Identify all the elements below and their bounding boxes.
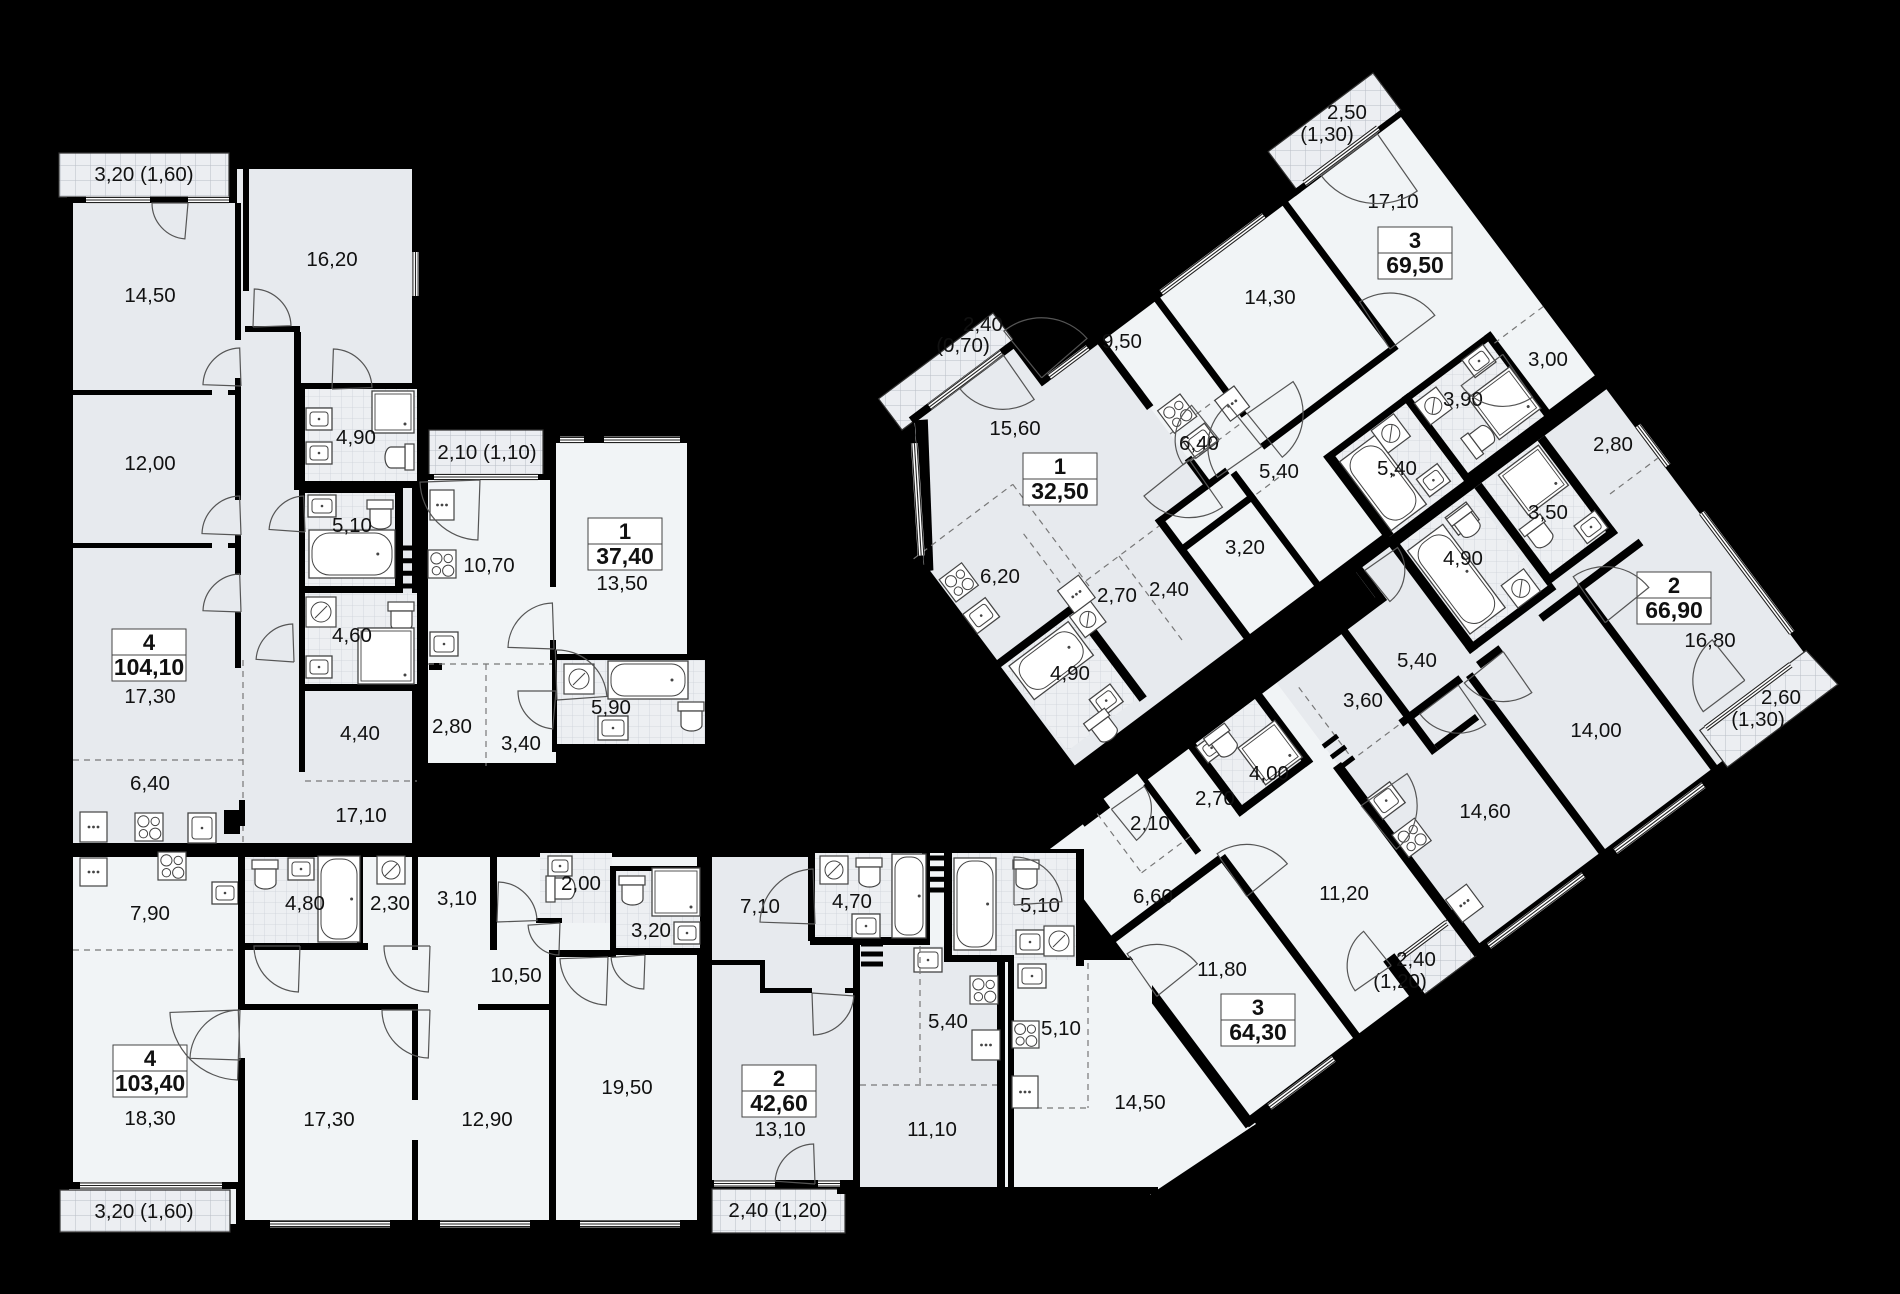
svg-text:17,30: 17,30 (124, 685, 175, 708)
svg-text:3,00: 3,00 (1528, 348, 1568, 371)
svg-text:3,20 (1,60): 3,20 (1,60) (94, 163, 193, 186)
svg-text:2,30: 2,30 (370, 892, 410, 915)
svg-text:13,10: 13,10 (754, 1118, 805, 1141)
svg-text:2,40: 2,40 (963, 313, 1003, 336)
svg-text:2,40 (1,20): 2,40 (1,20) (728, 1199, 827, 1222)
svg-text:4,00: 4,00 (1249, 762, 1289, 785)
svg-text:3,40: 3,40 (501, 732, 541, 755)
svg-text:14,30: 14,30 (1244, 286, 1295, 309)
svg-text:10,70: 10,70 (463, 554, 514, 577)
svg-text:2,80: 2,80 (432, 715, 472, 738)
svg-text:17,30: 17,30 (303, 1108, 354, 1131)
svg-text:9,50: 9,50 (1102, 330, 1142, 353)
svg-text:5,10: 5,10 (1020, 894, 1060, 917)
svg-text:2,10 (1,10): 2,10 (1,10) (437, 441, 536, 464)
svg-text:1: 1 (619, 519, 631, 544)
svg-text:4,70: 4,70 (832, 890, 872, 913)
svg-text:5,10: 5,10 (332, 514, 372, 537)
svg-text:2,80: 2,80 (1593, 433, 1633, 456)
svg-text:4,60: 4,60 (332, 624, 372, 647)
svg-text:104,10: 104,10 (114, 654, 184, 680)
svg-text:37,40: 37,40 (596, 543, 654, 569)
svg-text:15,60: 15,60 (989, 417, 1040, 440)
svg-text:3,50: 3,50 (1528, 501, 1568, 524)
svg-text:3,20 (1,60): 3,20 (1,60) (94, 1200, 193, 1223)
svg-text:14,60: 14,60 (1459, 800, 1510, 823)
svg-text:4,90: 4,90 (336, 426, 376, 449)
svg-text:2,60: 2,60 (1761, 686, 1801, 709)
svg-text:11,20: 11,20 (1319, 882, 1369, 905)
svg-text:13,50: 13,50 (596, 572, 647, 595)
svg-text:14,50: 14,50 (1114, 1091, 1165, 1114)
svg-text:64,30: 64,30 (1229, 1019, 1287, 1045)
svg-text:7,10: 7,10 (740, 895, 780, 918)
svg-text:2: 2 (1668, 573, 1680, 598)
svg-text:18,30: 18,30 (124, 1107, 175, 1130)
svg-text:(1,30): (1,30) (1300, 123, 1354, 146)
svg-text:3,20: 3,20 (631, 919, 671, 942)
svg-text:3,20: 3,20 (1225, 536, 1265, 559)
svg-text:5,10: 5,10 (1041, 1017, 1081, 1040)
svg-text:6,60: 6,60 (1133, 885, 1173, 908)
svg-text:11,80: 11,80 (1197, 958, 1247, 981)
svg-text:17,10: 17,10 (335, 804, 386, 827)
svg-text:12,90: 12,90 (461, 1108, 512, 1131)
svg-text:3,10: 3,10 (437, 887, 477, 910)
svg-text:5,40: 5,40 (1397, 649, 1437, 672)
svg-text:16,20: 16,20 (306, 248, 357, 271)
svg-text:3: 3 (1252, 995, 1264, 1020)
svg-text:2,00: 2,00 (561, 872, 601, 895)
svg-text:14,50: 14,50 (124, 284, 175, 307)
svg-text:2,70: 2,70 (1097, 584, 1137, 607)
svg-text:4,90: 4,90 (1050, 662, 1090, 685)
svg-text:32,50: 32,50 (1031, 478, 1089, 504)
svg-text:16,80: 16,80 (1684, 629, 1735, 652)
svg-text:4: 4 (144, 1046, 157, 1071)
svg-text:5,40: 5,40 (928, 1010, 968, 1033)
svg-text:(1,20): (1,20) (1373, 970, 1427, 993)
svg-text:4,80: 4,80 (285, 892, 325, 915)
svg-text:42,60: 42,60 (750, 1090, 808, 1116)
svg-text:3,60: 3,60 (1343, 689, 1383, 712)
svg-text:5,40: 5,40 (1259, 460, 1299, 483)
svg-text:(0,70): (0,70) (936, 334, 990, 357)
svg-text:12,00: 12,00 (124, 452, 175, 475)
svg-text:66,90: 66,90 (1645, 597, 1703, 623)
svg-text:4,40: 4,40 (340, 722, 380, 745)
svg-text:5,90: 5,90 (591, 696, 631, 719)
svg-text:7,90: 7,90 (130, 902, 170, 925)
svg-text:14,00: 14,00 (1570, 719, 1621, 742)
svg-text:6,20: 6,20 (980, 565, 1020, 588)
svg-text:(1,30): (1,30) (1731, 708, 1785, 731)
svg-text:2,40: 2,40 (1396, 948, 1436, 971)
svg-text:5,40: 5,40 (1377, 457, 1417, 480)
svg-text:6,40: 6,40 (130, 772, 170, 795)
svg-text:2,50: 2,50 (1327, 101, 1367, 124)
svg-text:11,10: 11,10 (907, 1118, 957, 1141)
svg-text:4: 4 (143, 630, 156, 655)
svg-text:10,50: 10,50 (490, 964, 541, 987)
svg-text:69,50: 69,50 (1386, 252, 1444, 278)
svg-text:1: 1 (1054, 454, 1066, 479)
svg-text:103,40: 103,40 (115, 1070, 185, 1096)
svg-text:2: 2 (773, 1066, 785, 1091)
svg-text:19,50: 19,50 (601, 1076, 652, 1099)
svg-text:4,90: 4,90 (1443, 547, 1483, 570)
svg-text:2,70: 2,70 (1195, 787, 1235, 810)
svg-text:3: 3 (1409, 228, 1421, 253)
svg-text:2,40: 2,40 (1149, 578, 1189, 601)
svg-text:2,10: 2,10 (1130, 812, 1170, 835)
